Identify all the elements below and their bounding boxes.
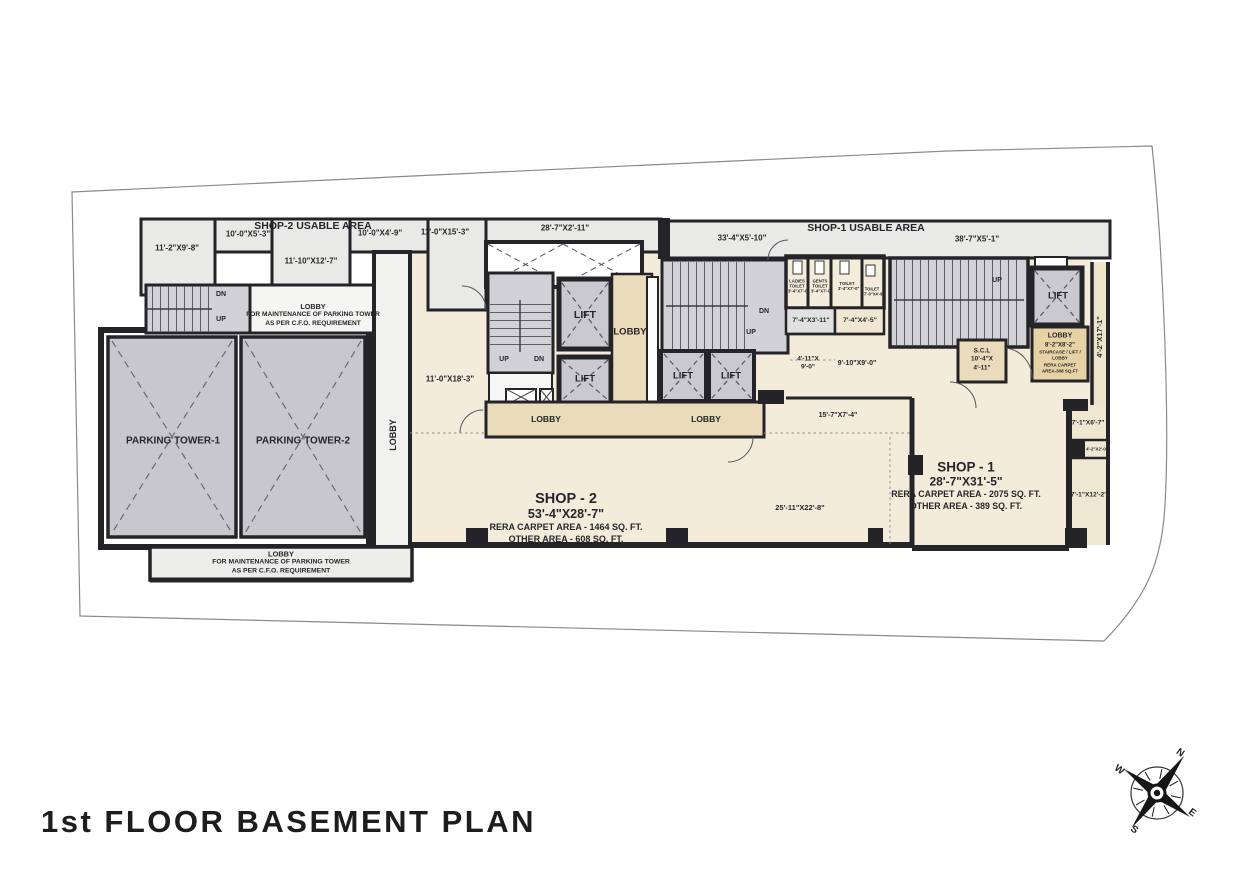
core2-lift2-label: LIFT <box>721 372 741 383</box>
scl-line2: 10'-4"X <box>971 356 993 364</box>
toilet4-label: TOILET 7'-0"X4'-9" <box>864 287 880 296</box>
maint-bottom-line2: FOR MAINTENANCE OF PARKING TOWER <box>212 559 350 568</box>
ladies-toilet-label: LADIES TOILET 3'-4"X7'-0" <box>788 280 806 295</box>
core3-lobby-name: LOBBY <box>1039 331 1080 341</box>
core1-dn-label: DN <box>534 356 544 364</box>
page-title: 1st FLOOR BASEMENT PLAN <box>41 804 536 840</box>
compass-rose <box>1099 732 1218 852</box>
dim-label-s2-3: 10'-0"X4'-9" <box>358 230 402 239</box>
scl-line3: 4'-11" <box>971 364 993 372</box>
pass1-line1: 4'-11"X <box>797 356 819 364</box>
maint-bottom-line3: AS PER C.F.O. REQUIREMENT <box>212 568 350 577</box>
core1-lift2-label: LIFT <box>575 375 595 386</box>
shop1-other: OTHER AREA - 389 SQ. FT. <box>910 502 1022 512</box>
core1-lift1-label: LIFT <box>574 310 596 322</box>
dim-label-right1: 7'-1"X6'-7" <box>1072 419 1105 426</box>
dim-label-toilet-room2: 7'-4"X4'-5" <box>843 317 877 325</box>
pass1-line2: 9'-0" <box>797 364 819 372</box>
shop2-other: OTHER AREA - 608 SQ. FT. <box>509 534 624 544</box>
shop2-rera: RERA CARPET AREA - 1464 SQ. FT. <box>489 522 642 532</box>
stair-dn-label: DN <box>216 291 226 299</box>
scl-line1: S.C.L <box>971 348 993 356</box>
maintenance-lobby-top-label: LOBBY FOR MAINTENANCE OF PARKING TOWER A… <box>246 302 379 328</box>
core2-up-label: UP <box>746 329 756 337</box>
stair-up-label: UP <box>216 316 226 324</box>
floor-plan-page: 11'-2"X9'-8" 10'-0"X5'-3" SHOP-2 USABLE … <box>0 0 1241 877</box>
dim-label-s2-6: 28'-7"X2'-11" <box>541 225 589 234</box>
maintenance-lobby-bottom-label: LOBBY FOR MAINTENANCE OF PARKING TOWER A… <box>212 550 350 577</box>
shop1-size: 28'-7"X31'-5" <box>929 475 1002 488</box>
staircase-lobby-box-label: LOBBY 8'-2"X8'-2" STAIRCASE / LIFT / LOB… <box>1039 331 1080 374</box>
parking-corridor <box>374 252 410 547</box>
toilet4-size: 7'-0"X4'-9" <box>864 292 880 297</box>
shop2-size: 53'-4"X28'-7" <box>528 507 604 521</box>
shop2-name: SHOP - 2 <box>535 491 597 507</box>
left-stair <box>146 285 250 333</box>
dim-label-s2-4: 11'-0"X15'-3" <box>421 229 469 238</box>
dim-label-right3: 7'-1"X12'-2" <box>1071 491 1108 498</box>
gents-toilet-label: GENTS TOILET 3'-4"X7'-0" <box>811 280 829 295</box>
core3-lobby-size: 8'-2"X8'-2" <box>1039 341 1080 349</box>
dim-label-s2-1: 11'-2"X9'-8" <box>155 245 199 254</box>
shop1-band-title: SHOP-1 USABLE AREA <box>807 223 924 235</box>
core3-lift-label: LIFT <box>1048 292 1068 303</box>
dim-label-s2-5: 11'-10"X12'-7" <box>285 258 338 267</box>
toilet3-label: TOILET 3'-4"X7'-0" <box>838 282 856 292</box>
gents-toilet-size: 3'-4"X7'-0" <box>811 289 829 294</box>
dim-label-pass2: 9'-10"X9'-0" <box>838 360 877 368</box>
shop2-band-title: SHOP-2 USABLE AREA <box>254 221 371 233</box>
core3-up-label: UP <box>992 277 1002 285</box>
parking-tower-2-label: PARKING TOWER-2 <box>256 435 350 446</box>
lobby-strip-label-2: LOBBY <box>691 415 721 425</box>
lobby-strip-label-1: LOBBY <box>531 415 561 425</box>
maint-top-line2: FOR MAINTENANCE OF PARKING TOWER <box>246 311 379 319</box>
shop1-name: SHOP - 1 <box>937 459 995 474</box>
dim-label-pass3: 15'-7"X7'-4" <box>819 412 858 420</box>
shop1-rera: RERA CARPET AREA - 2075 SQ. FT. <box>891 490 1041 500</box>
maint-top-line1: LOBBY <box>246 302 379 311</box>
core3-note4: AREA-308 SQ.FT <box>1039 368 1080 374</box>
dim-label-side: 4'-2"X17'-1" <box>1096 316 1104 358</box>
parking-tower-1-label: PARKING TOWER-1 <box>126 435 220 446</box>
scl-room-label: S.C.L 10'-4"X 4'-11" <box>971 348 993 373</box>
dim-label-core1: 11'-0"X18'-3" <box>426 376 474 385</box>
core1-up-label: UP <box>499 356 509 364</box>
core2-lift1-label: LIFT <box>673 372 693 383</box>
core1-lobby-label: LOBBY <box>613 328 646 339</box>
maint-top-line3: AS PER C.F.O. REQUIREMENT <box>246 320 379 328</box>
dim-label-s1-1: 33'-4"X5'-10" <box>718 235 767 244</box>
dim-label-toilet-room1: 7'-4"X3'-11" <box>792 317 829 325</box>
toilet3-size: 3'-4"X7'-0" <box>838 287 856 292</box>
ladies-toilet-size: 3'-4"X7'-0" <box>788 289 806 294</box>
shop1-dim: 25'-11"X22'-8" <box>775 504 824 512</box>
dim-label-s1-2: 38'-7"X5'-1" <box>955 236 999 245</box>
corridor-lobby-label: LOBBY <box>388 419 398 451</box>
dim-label-right2: 4'-2"X2'-0" <box>1086 448 1108 453</box>
maint-bottom-line1: LOBBY <box>212 550 350 559</box>
dim-label-pass1: 4'-11"X 9'-0" <box>797 356 819 373</box>
core2-dn-label: DN <box>759 308 769 316</box>
